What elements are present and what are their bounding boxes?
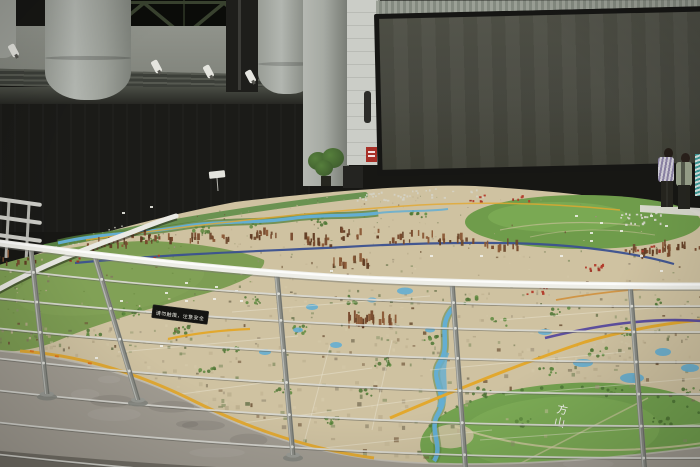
cable-stud: [42, 362, 45, 365]
railing-cable: [0, 358, 700, 394]
post-highlight: [451, 281, 465, 467]
cable-stud: [118, 338, 121, 341]
cable-stud: [454, 327, 457, 330]
post-shade: [33, 250, 49, 394]
cable-shadow: [0, 329, 700, 363]
cable-stud: [637, 393, 640, 396]
cable-shadow: [0, 359, 700, 395]
cable-stud: [461, 421, 464, 424]
cable-stud: [288, 413, 291, 416]
cable-stud: [277, 292, 280, 295]
cable-railing: 请勿触摸，注意安全: [0, 0, 700, 467]
railing-post: [452, 281, 466, 467]
post-shade: [632, 283, 647, 467]
post-highlight: [30, 250, 46, 394]
post-highlight: [629, 283, 644, 467]
railing-post: [630, 283, 645, 467]
cable-shadow: [0, 423, 700, 459]
cable-stud: [459, 389, 462, 392]
cable-stud: [35, 301, 38, 304]
railing-post: [277, 276, 293, 455]
cable-shadow: [0, 299, 700, 333]
cable-stud: [642, 457, 645, 460]
cable-stud: [456, 357, 459, 360]
cable-stud: [635, 360, 638, 363]
post-shade: [279, 276, 295, 455]
cable-stud: [100, 278, 103, 281]
post-highlight: [276, 276, 292, 455]
cable-shadow: [0, 391, 700, 427]
cable-stud: [282, 349, 285, 352]
cable-stud: [632, 330, 635, 333]
post-shade: [97, 257, 140, 400]
cable-stud: [291, 445, 294, 448]
exhibition-hall-photo: 方山 请勿触摸，注意安全: [0, 0, 700, 467]
cable-stud: [463, 453, 466, 456]
cable-stud: [128, 370, 131, 373]
cable-stud: [285, 381, 288, 384]
cable-stud: [32, 271, 35, 274]
cable-stud: [39, 331, 42, 334]
warning-sign: 请勿触摸，注意安全: [152, 305, 209, 325]
post-shade: [454, 281, 468, 467]
cable-stud: [452, 301, 455, 304]
cable-stud: [280, 319, 283, 322]
post-highlight: [94, 257, 137, 400]
railing-cable: [0, 454, 700, 467]
cable-stud: [630, 305, 633, 308]
railing-cable: [0, 298, 700, 332]
cable-stud: [640, 425, 643, 428]
cable-stud: [109, 307, 112, 310]
